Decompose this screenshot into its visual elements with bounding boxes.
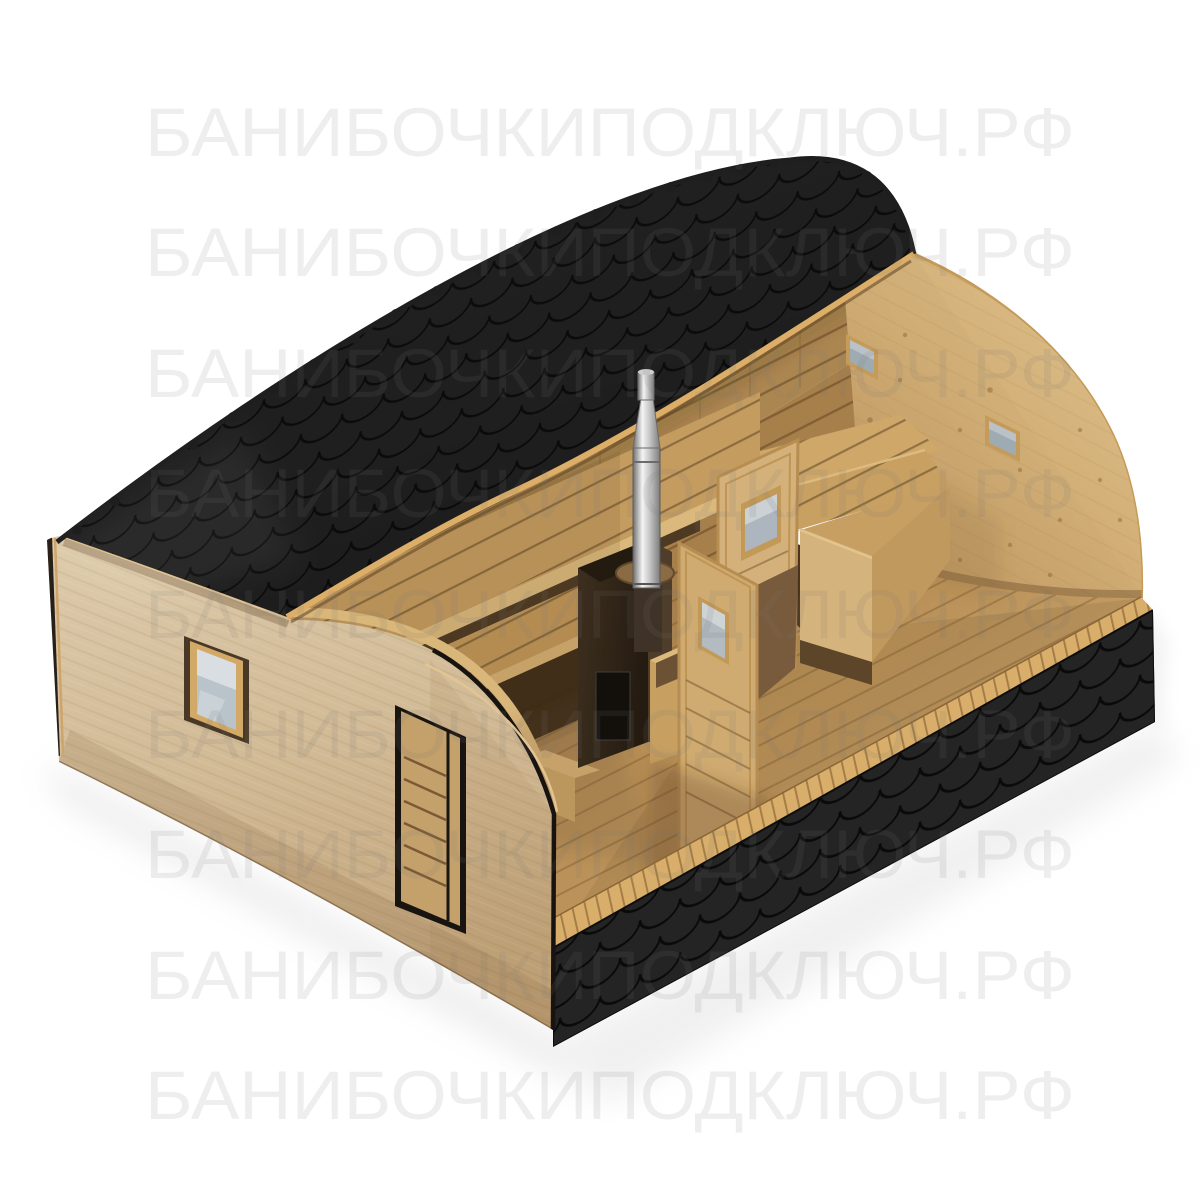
svg-text:БАНИБОЧКИПОДКЛЮЧ.РФ: БАНИБОЧКИПОДКЛЮЧ.РФ — [145, 335, 1075, 412]
svg-text:БАНИБОЧКИПОДКЛЮЧ.РФ: БАНИБОЧКИПОДКЛЮЧ.РФ — [145, 214, 1075, 291]
svg-text:БАНИБОЧКИПОДКЛЮЧ.РФ: БАНИБОЧКИПОДКЛЮЧ.РФ — [145, 816, 1075, 893]
svg-text:БАНИБОЧКИПОДКЛЮЧ.РФ: БАНИБОЧКИПОДКЛЮЧ.РФ — [145, 696, 1075, 773]
svg-text:БАНИБОЧКИПОДКЛЮЧ.РФ: БАНИБОЧКИПОДКЛЮЧ.РФ — [145, 576, 1075, 653]
svg-text:БАНИБОЧКИПОДКЛЮЧ.РФ: БАНИБОЧКИПОДКЛЮЧ.РФ — [145, 937, 1075, 1014]
svg-text:БАНИБОЧКИПОДКЛЮЧ.РФ: БАНИБОЧКИПОДКЛЮЧ.РФ — [145, 94, 1075, 171]
svg-text:БАНИБОЧКИПОДКЛЮЧ.РФ: БАНИБОЧКИПОДКЛЮЧ.РФ — [145, 455, 1075, 532]
svg-text:БАНИБОЧКИПОДКЛЮЧ.РФ: БАНИБОЧКИПОДКЛЮЧ.РФ — [145, 1057, 1075, 1134]
